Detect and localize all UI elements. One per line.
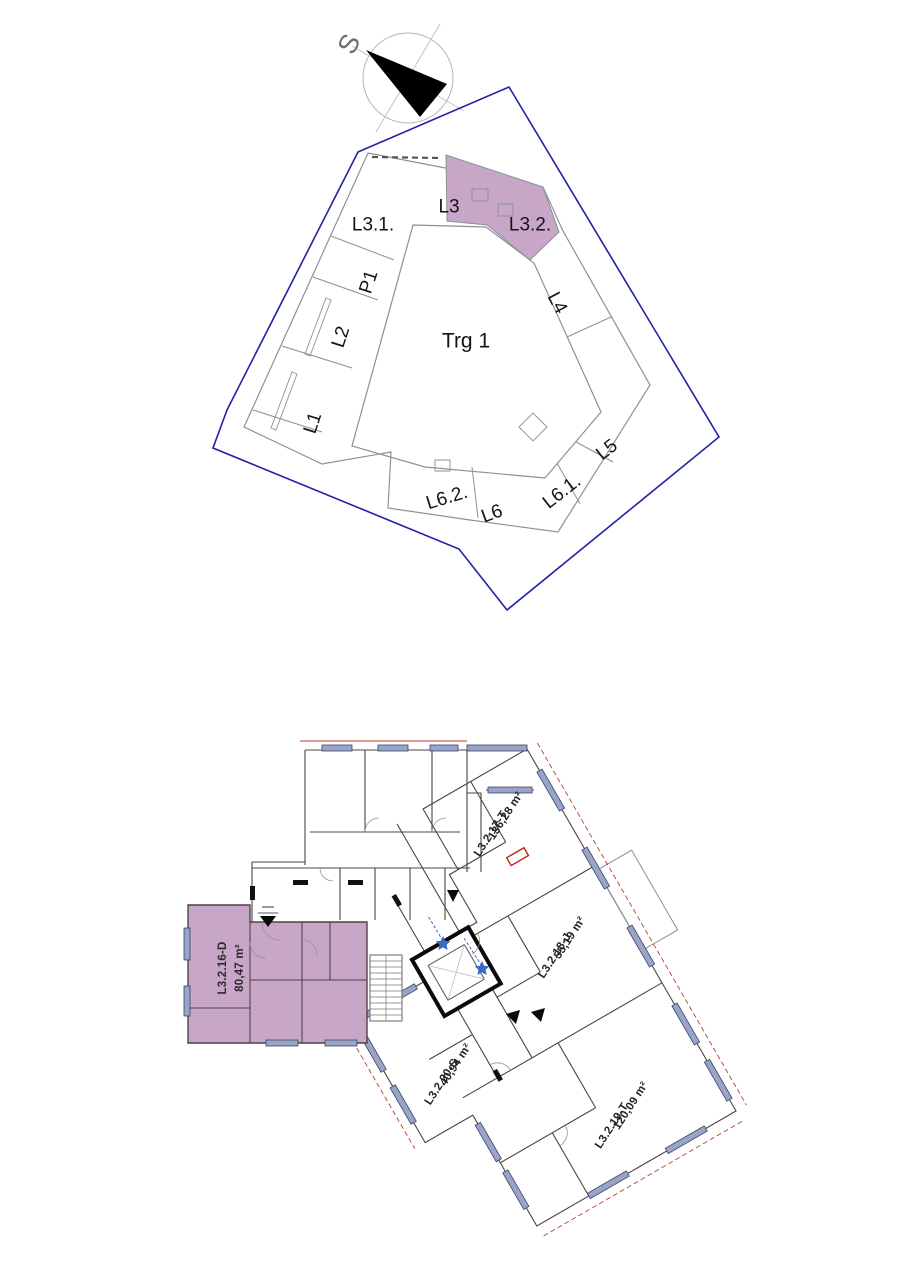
blueprint-page: { "site_plan": { "north_label": "S", "pl… — [0, 0, 905, 1280]
highlighted-element-marker — [507, 848, 529, 866]
north-arrow: S — [332, 24, 464, 132]
elevator-core — [412, 927, 501, 1016]
site-label-l6: L6 — [478, 501, 505, 528]
stair-flight — [370, 955, 402, 1021]
block-outer-walls — [252, 750, 467, 922]
unit-label-l3216d-area: 80,47 m² — [234, 944, 246, 992]
block-l32-highlight — [446, 155, 559, 260]
north-arrow-needle — [366, 50, 447, 117]
site-label-l2: L2 — [328, 324, 355, 351]
block-window-symbols — [322, 745, 532, 793]
entry-arrow — [531, 1008, 545, 1022]
unit-label-l3219t-id: L3.2.19-T — [593, 1101, 631, 1151]
site-label-p1: P1 — [355, 268, 382, 297]
site-label-l3: L3 — [438, 197, 459, 218]
block-door-arcs — [320, 818, 446, 881]
site-label-plaza: Trg 1 — [442, 330, 490, 353]
site-label-l5: L5 — [592, 435, 622, 465]
site-hatch-marks — [372, 157, 441, 158]
site-label-l1: L1 — [300, 410, 327, 437]
floor-plan: L3.2.16-D 80,47 m² 136,28 m² L3.2.17-T 5… — [184, 729, 777, 1270]
site-label-l3-2: L3.2. — [509, 215, 551, 236]
unit-label-l3218j-id: L3.2.18-J — [536, 931, 574, 980]
wall-jamb — [293, 880, 308, 885]
highlighted-apartment — [184, 905, 367, 1046]
wall-jamb — [250, 886, 255, 900]
site-plan: L3.1. L3 L3.2. P1 L2 L1 L4 L5 L6.1. L6 L… — [213, 87, 719, 610]
wall-jamb — [392, 894, 402, 907]
drawing-canvas: S L3.1. L3 L3.2. P1 L2 L1 L4 L5 L6.1. L6… — [0, 0, 905, 1280]
north-label: S — [332, 29, 367, 59]
unit-label-l3216d-id: L3.2.16-D — [217, 942, 229, 995]
entry-arrow — [447, 890, 459, 902]
apartment-l3216d-fill — [188, 905, 367, 1043]
site-label-l6-2: L6.2. — [424, 482, 471, 514]
unit-label-l3220s-id: L3.2.20-S — [423, 1057, 462, 1108]
wall-jamb — [348, 880, 363, 885]
building-divider-walls — [253, 236, 613, 518]
site-label-l3-1: L3.1. — [352, 215, 394, 236]
